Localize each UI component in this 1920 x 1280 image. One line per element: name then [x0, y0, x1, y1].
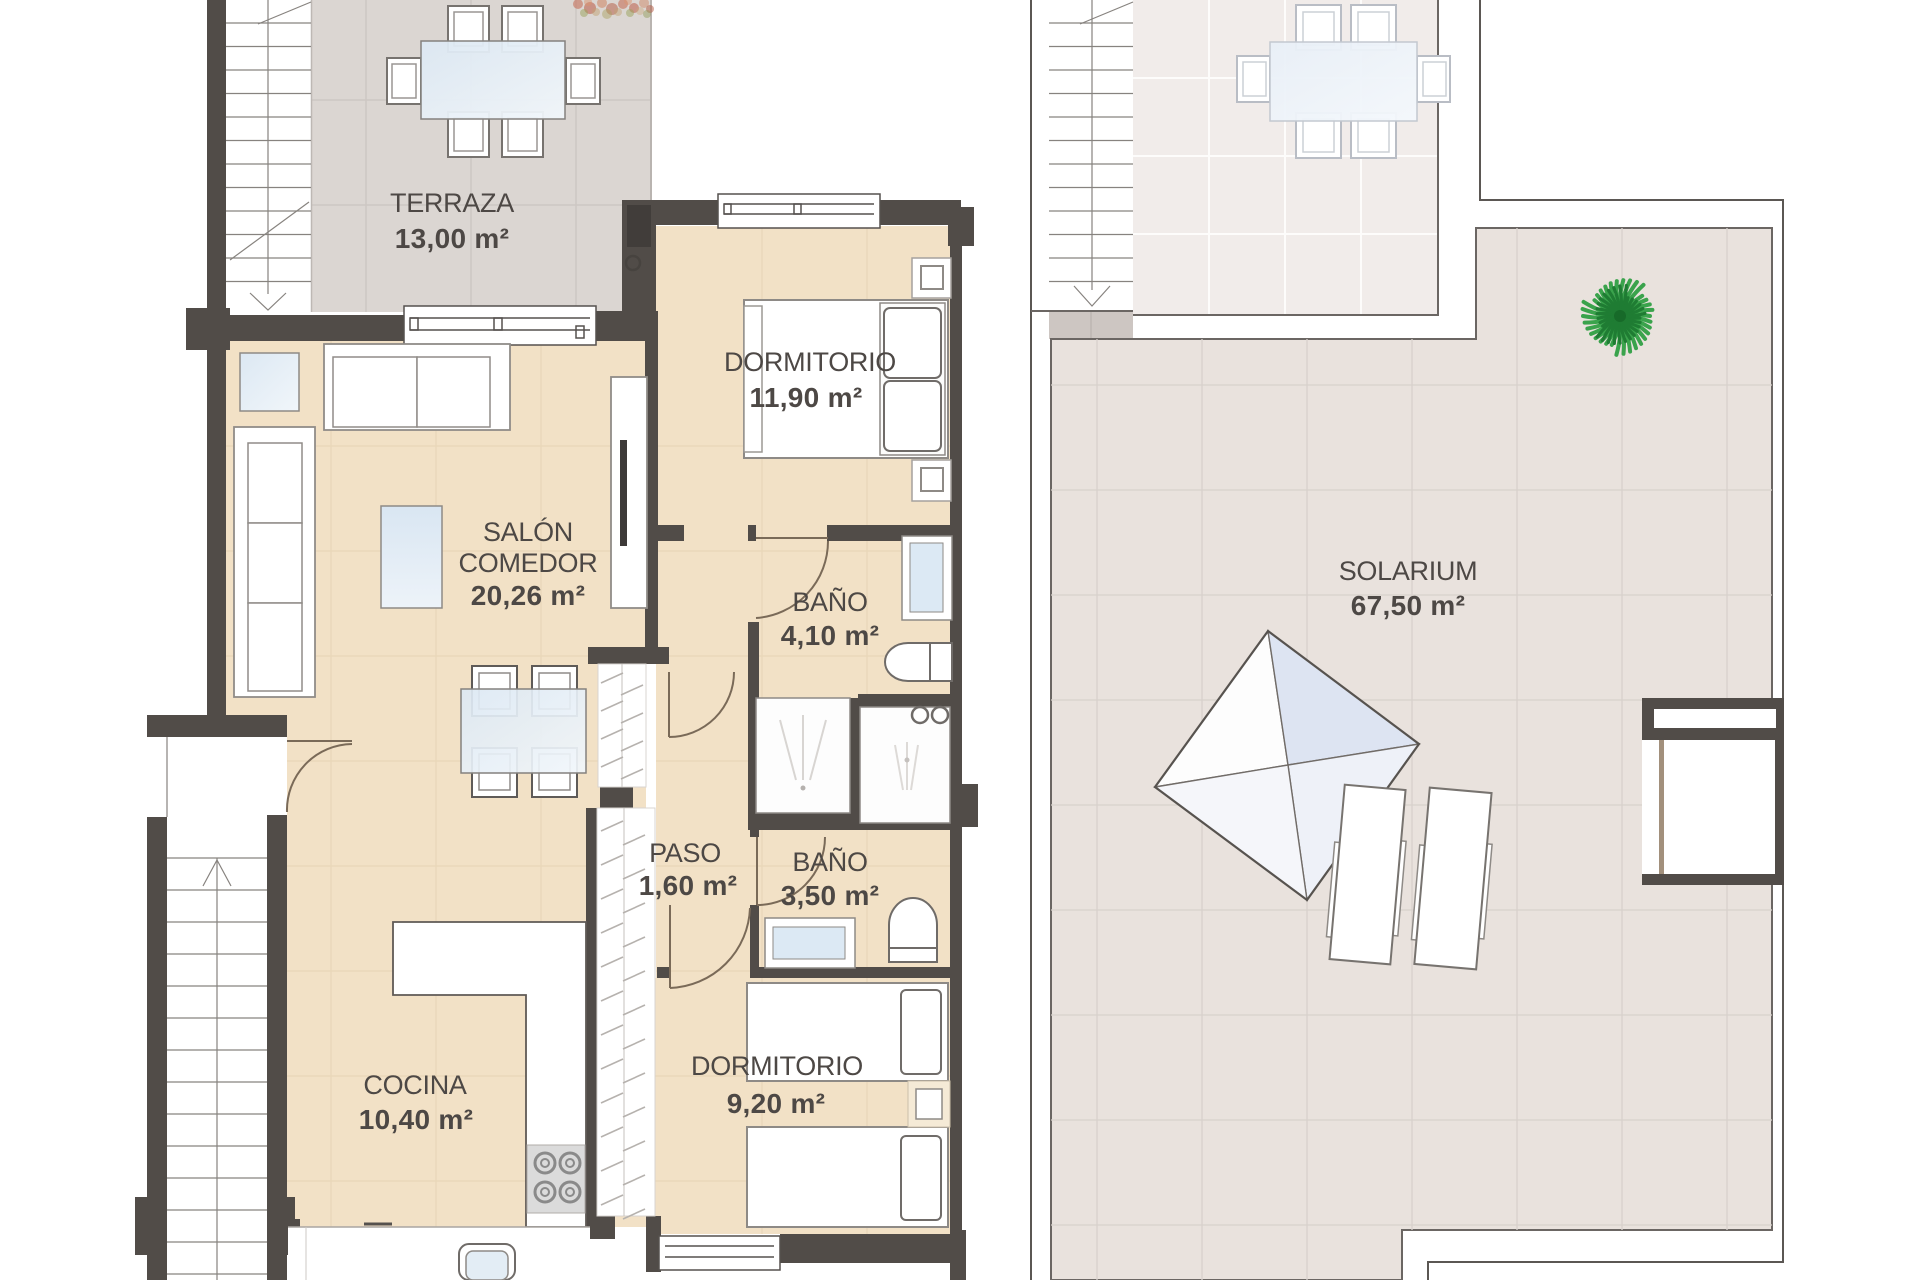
svg-text:DORMITORIO: DORMITORIO — [724, 347, 896, 377]
svg-text:13,00 m²: 13,00 m² — [395, 223, 509, 254]
svg-text:3,50 m²: 3,50 m² — [781, 880, 880, 911]
svg-text:BAÑO: BAÑO — [792, 586, 867, 617]
svg-text:SOLARIUM: SOLARIUM — [1339, 556, 1478, 586]
svg-text:1,60 m²: 1,60 m² — [639, 870, 738, 901]
svg-text:SALÓN: SALÓN — [483, 516, 573, 547]
svg-text:COCINA: COCINA — [363, 1070, 466, 1100]
svg-text:9,20 m²: 9,20 m² — [727, 1088, 826, 1119]
svg-text:20,26 m²: 20,26 m² — [471, 580, 585, 611]
svg-text:TERRAZA: TERRAZA — [390, 188, 514, 218]
svg-text:PASO: PASO — [649, 838, 721, 868]
svg-text:BAÑO: BAÑO — [792, 846, 867, 877]
svg-text:10,40 m²: 10,40 m² — [359, 1104, 473, 1135]
svg-text:67,50 m²: 67,50 m² — [1351, 590, 1465, 621]
svg-text:COMEDOR: COMEDOR — [459, 548, 598, 578]
svg-text:11,90 m²: 11,90 m² — [750, 382, 863, 413]
svg-text:DORMITORIO: DORMITORIO — [691, 1051, 863, 1081]
svg-text:4,10 m²: 4,10 m² — [781, 620, 880, 651]
